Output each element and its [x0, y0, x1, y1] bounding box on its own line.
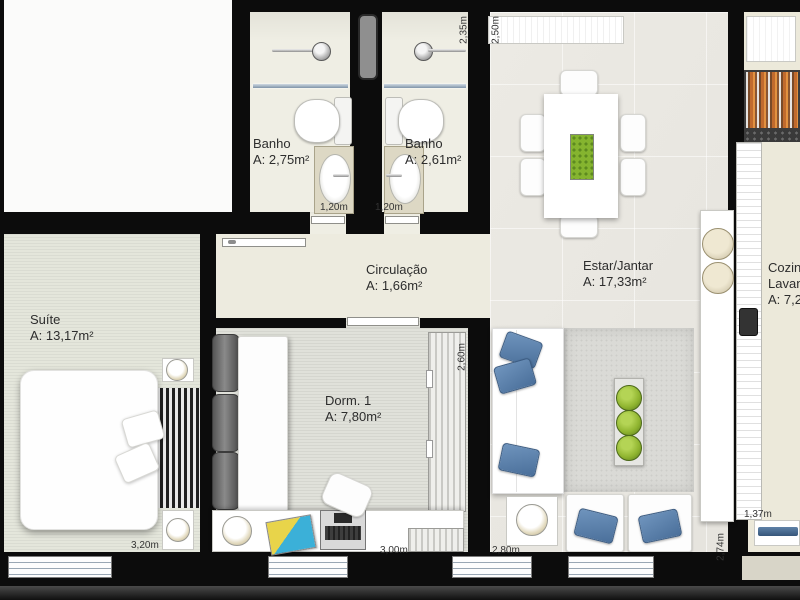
- room-area: A: 1,66m²: [366, 278, 427, 294]
- plant-icon: [616, 385, 642, 411]
- room-name: Banho: [405, 136, 461, 152]
- window-top-right: [746, 16, 796, 62]
- table-centerpiece-plant: [570, 134, 594, 180]
- room-name: Cozinha: [768, 260, 800, 276]
- desk-lamp-icon: [222, 516, 252, 546]
- room-name: Suíte: [30, 312, 94, 328]
- dim-kitchen-depth: 2,74m: [716, 533, 727, 561]
- dim-dorm1-depth: 2,60m: [457, 343, 468, 371]
- wall-bath2-right: [468, 0, 490, 234]
- wall-circulation-top: [232, 212, 490, 234]
- bathroom1-door-leaf: [311, 216, 345, 224]
- wall-left: [0, 0, 4, 600]
- faucet-icon: [386, 174, 402, 177]
- bathroom2-door-leaf: [385, 216, 419, 224]
- dim-estar-width: 2,80m: [492, 545, 520, 556]
- dining-chair: [620, 158, 646, 196]
- wall-dorm1-top: [216, 318, 468, 328]
- sink-icon: [319, 154, 351, 204]
- room-name: Circulação: [366, 262, 427, 278]
- wall-bottom-band: [0, 552, 800, 586]
- shower-head-icon: [312, 42, 331, 61]
- suite-door-handle: [228, 240, 236, 244]
- room-area: A: 7,2: [768, 292, 800, 308]
- window: [452, 556, 532, 578]
- nightstand-lamp-icon: [166, 359, 188, 381]
- room-name: Dorm. 1: [325, 393, 381, 409]
- room-label-banho2: Banho A: 2,61m²: [405, 136, 461, 168]
- dim-bath2-counter: 1,20m: [375, 202, 403, 213]
- room-name: Banho: [253, 136, 309, 152]
- window: [8, 556, 112, 578]
- dining-chair: [620, 114, 646, 152]
- faucet-icon: [333, 174, 349, 177]
- dining-chair: [560, 70, 598, 96]
- dorm-bed-mattress: [238, 336, 288, 512]
- dim-bath1-counter: 1,20m: [320, 202, 348, 213]
- dim-estar-top: 2,50m: [491, 16, 502, 44]
- balcony-floor-patch: [742, 556, 800, 580]
- folding-rack: [408, 528, 464, 552]
- nightstand-lamp-icon: [166, 518, 190, 542]
- room-name: Lavanderia: [768, 276, 800, 292]
- plant-icon: [616, 435, 642, 461]
- room-area: A: 17,33m²: [583, 274, 653, 290]
- wall-top: [232, 0, 800, 12]
- window: [568, 556, 654, 578]
- dim-suite-width: 3,20m: [131, 540, 159, 551]
- room-label-estar: Estar/Jantar A: 17,33m²: [583, 258, 653, 290]
- room-name: Estar/Jantar: [583, 258, 653, 274]
- wall-dorm1-right: [468, 318, 490, 552]
- room-label-banho1: Banho A: 2,75m²: [253, 136, 309, 168]
- shower-rail-icon: [428, 49, 466, 52]
- room-label-dorm1: Dorm. 1 A: 7,80m²: [325, 393, 381, 425]
- laundry-tank-icon: [758, 527, 798, 536]
- counter-stool: [702, 262, 734, 294]
- duct-shaft: [358, 14, 378, 80]
- room-label-suite: Suíte A: 13,17m²: [30, 312, 94, 344]
- room-area: A: 7,80m²: [325, 409, 381, 425]
- dining-chair: [520, 114, 546, 152]
- table-lamp-icon: [516, 504, 548, 536]
- barbecue-grill-icon: [744, 70, 800, 130]
- wardrobe-handle: [426, 370, 433, 388]
- dorm1-door-leaf: [347, 317, 419, 326]
- wall-kitchen-top-left: [728, 0, 744, 142]
- room-label-circulacao: Circulação A: 1,66m²: [366, 262, 427, 294]
- room-area: A: 13,17m²: [30, 328, 94, 344]
- wall-neighbor-bottom: [0, 212, 250, 234]
- ground-shadow: [0, 586, 800, 600]
- dorm-bed-pillow: [212, 452, 240, 510]
- laptop-keyboard: [325, 526, 361, 540]
- dining-chair: [520, 158, 546, 196]
- shower-glass-partition: [253, 84, 348, 88]
- room-area: A: 2,61m²: [405, 152, 461, 168]
- shower-glass-partition: [384, 84, 466, 88]
- room-label-cozinha: Cozinha Lavanderia A: 7,2: [768, 260, 800, 308]
- counter-stool: [702, 228, 734, 260]
- room-area: A: 2,75m²: [253, 152, 309, 168]
- grill-base: [744, 130, 800, 142]
- wardrobe-handle: [426, 440, 433, 458]
- window: [268, 556, 348, 578]
- plant-icon: [616, 410, 642, 436]
- wall-neighbor-right: [232, 0, 250, 234]
- neighbor-area-floor: [4, 0, 232, 212]
- floor-plan: Banho A: 2,75m² Banho A: 2,61m² Circulaç…: [0, 0, 800, 600]
- window-sill-top: [488, 16, 624, 44]
- kitchen-sink-icon: [739, 308, 758, 336]
- dorm-bed-pillow: [212, 334, 240, 392]
- dim-dorm1-width: 3,00m: [380, 545, 408, 556]
- dorm-bed-pillow: [212, 394, 240, 452]
- dim-bath2-height: 2,35m: [459, 16, 470, 44]
- dim-kitchen-passage: 1,37m: [744, 509, 772, 520]
